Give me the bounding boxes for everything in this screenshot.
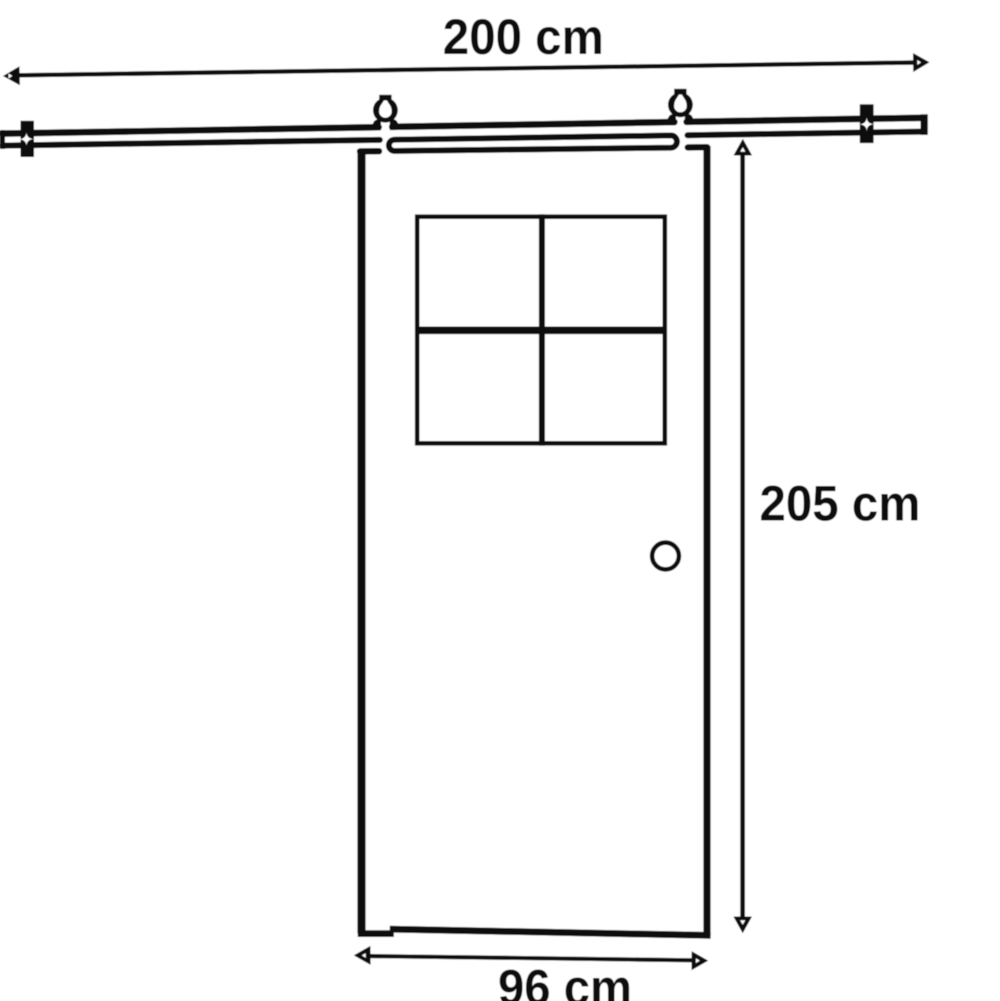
svg-text:205 cm: 205 cm — [760, 476, 921, 532]
svg-text:200 cm: 200 cm — [443, 9, 604, 65]
svg-text:96 cm: 96 cm — [498, 960, 632, 1001]
